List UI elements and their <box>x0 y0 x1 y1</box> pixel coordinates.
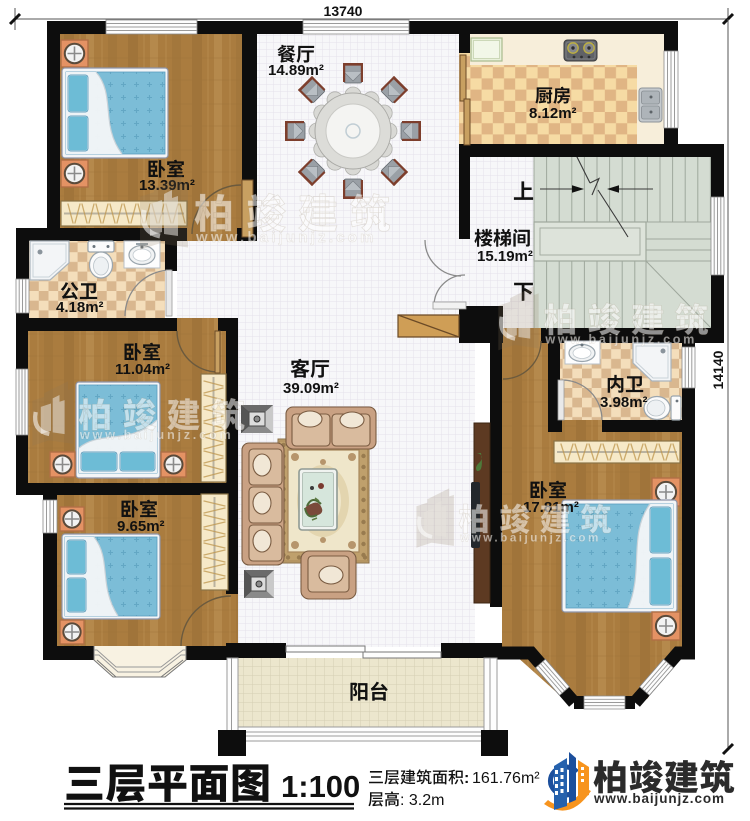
svg-text:13740: 13740 <box>324 3 363 19</box>
svg-text:39.09m²: 39.09m² <box>283 380 339 397</box>
svg-text:3.98m²: 3.98m² <box>600 394 648 411</box>
svg-text:: 3.2m: : 3.2m <box>400 792 444 809</box>
svg-text:4.18m²: 4.18m² <box>56 299 104 316</box>
svg-text:9.65m²: 9.65m² <box>117 518 165 535</box>
svg-text:www.baijunjz.com: www.baijunjz.com <box>593 791 725 806</box>
svg-text::: : <box>464 770 469 787</box>
svg-text:8.12m²: 8.12m² <box>529 105 577 122</box>
svg-text:www.baijunjz.com: www.baijunjz.com <box>195 229 377 246</box>
svg-text:1:100: 1:100 <box>281 769 360 804</box>
svg-text:www.baijunjz.com: www.baijunjz.com <box>79 427 234 442</box>
svg-text:161.76m²: 161.76m² <box>472 770 540 787</box>
svg-text:15.19m²: 15.19m² <box>477 248 533 265</box>
svg-text:14.89m²: 14.89m² <box>268 62 324 79</box>
svg-text:www.baijunjz.com: www.baijunjz.com <box>459 532 601 545</box>
svg-text:14140: 14140 <box>710 350 726 389</box>
svg-text:11.04m²: 11.04m² <box>115 361 170 378</box>
svg-text:www.baijunjz.com: www.baijunjz.com <box>544 333 697 347</box>
